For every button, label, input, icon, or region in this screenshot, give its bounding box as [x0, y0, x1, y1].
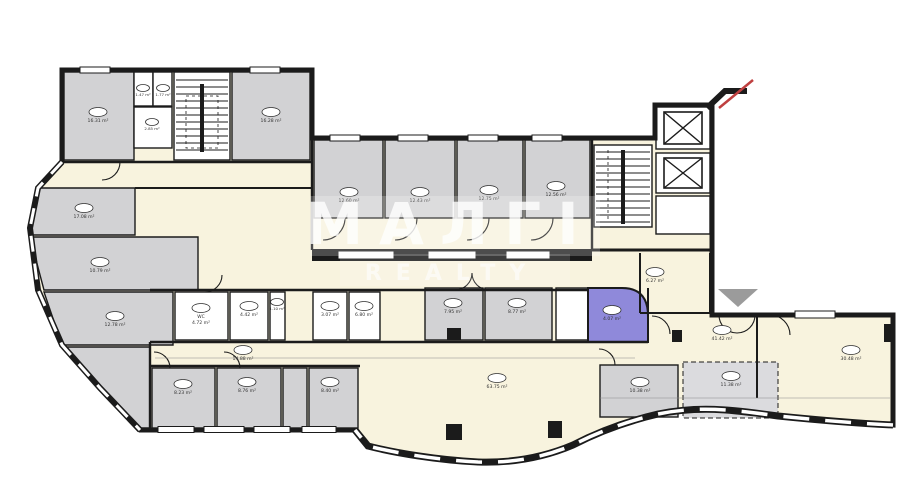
stairwell-left: [174, 72, 230, 160]
site-entry-mark: [707, 80, 753, 108]
room-area-label: 10.79 m²: [90, 268, 111, 274]
room-tag-oval: [192, 304, 210, 313]
room-tag-oval: [646, 268, 664, 277]
room-tag-oval: [488, 374, 506, 383]
room-type-label: WC: [197, 314, 204, 320]
room-area-label: 14.88 m²: [233, 356, 254, 362]
room-area-label: 7.95 m²: [444, 309, 462, 315]
room-tag-oval: [137, 85, 150, 92]
floor-plan-canvas: 16.31 m²1.47 m²1.77 m²2.85 m²16.28 m²17.…: [0, 0, 900, 500]
window: [302, 427, 336, 433]
watermark: МАЛГІ REALTY: [305, 190, 600, 286]
room-area-label: 17.08 m²: [74, 214, 95, 220]
room-tag-oval: [271, 299, 284, 306]
window: [254, 427, 290, 433]
room-tag-oval: [842, 346, 860, 355]
duct: [672, 330, 682, 342]
room-tag-oval: [75, 204, 93, 213]
stair-stringer: [200, 84, 204, 152]
pier: [446, 424, 462, 440]
room-area-label: 4.42 m²: [240, 312, 258, 318]
room-tag-oval: [631, 378, 649, 387]
room-tag-oval: [157, 85, 170, 92]
room-area-label: 1.10 m²: [269, 306, 285, 311]
window: [468, 135, 498, 141]
duct: [884, 324, 893, 342]
watermark-brand: МАЛГІ: [305, 190, 594, 258]
room-tag-oval: [174, 380, 192, 389]
room-area-label: 30.48 m²: [841, 356, 862, 362]
window: [204, 427, 244, 433]
entry-canopy: [707, 91, 747, 108]
room: [152, 368, 215, 428]
window: [532, 135, 562, 141]
room-area-label: 6.80 m²: [355, 312, 373, 318]
room-area-label: 63.75 m²: [487, 384, 508, 390]
room-tag-oval: [240, 302, 258, 311]
window: [398, 135, 428, 141]
room-area-label: 4.72 m²: [192, 320, 210, 326]
room-tag-oval: [106, 312, 124, 321]
room-area-label: 8.40 m²: [321, 388, 339, 394]
stair-stringer: [621, 150, 625, 224]
room-area-label: 8.77 m²: [508, 309, 526, 315]
room-area-label: 6.27 m²: [646, 278, 664, 284]
elevator-block: [656, 107, 710, 234]
room: [283, 368, 307, 428]
window: [330, 135, 360, 141]
room-area-label: 41.42 m²: [712, 336, 733, 342]
room-area-label: 8.76 m²: [238, 388, 256, 394]
room-tag-oval: [146, 119, 159, 126]
window: [250, 67, 280, 73]
window: [80, 67, 110, 73]
entrance-triangle-marker: [718, 289, 758, 307]
room-tag-oval: [321, 302, 339, 311]
service-room: [656, 196, 710, 234]
room-area-label: 8.23 m²: [174, 390, 192, 396]
watermark-realty: REALTY: [365, 261, 539, 286]
room-tag-oval: [355, 302, 373, 311]
room-area-label: 2.85 m²: [144, 126, 160, 131]
room-tag-oval: [91, 258, 109, 267]
room-tag-oval: [603, 306, 621, 315]
window: [158, 427, 194, 433]
pier: [548, 421, 562, 438]
room-area-label: 16.31 m²: [88, 118, 109, 124]
room-area-label: 1.77 m²: [155, 92, 171, 97]
room-area-label: 12.78 m²: [105, 322, 126, 328]
room-tag-oval: [444, 299, 462, 308]
stairwell-right: [594, 145, 652, 227]
room: [309, 368, 358, 428]
room-tag-oval: [321, 378, 339, 387]
room-area-label: 11.38 m²: [721, 382, 742, 388]
closet: [447, 328, 461, 340]
floor-plan-svg: 16.31 m²1.47 m²1.77 m²2.85 m²16.28 m²17.…: [0, 0, 900, 500]
room-area-label: 4.07 m²: [603, 316, 621, 322]
room-tag-oval: [234, 346, 252, 355]
room-tag-oval: [262, 108, 280, 117]
room: [30, 237, 198, 290]
room-area-label: 3.07 m²: [321, 312, 339, 318]
room-area-label: 1.47 m²: [135, 92, 151, 97]
room: [556, 288, 588, 340]
window: [795, 311, 835, 318]
room-area-label: 10.38 m²: [630, 388, 651, 394]
room-tag-oval: [89, 108, 107, 117]
room-tag-oval: [722, 372, 740, 381]
room-area-label: 16.28 m²: [261, 118, 282, 124]
room: [217, 368, 281, 428]
room-tag-oval: [238, 378, 256, 387]
room-tag-oval: [713, 326, 731, 335]
room-tag-oval: [508, 299, 526, 308]
